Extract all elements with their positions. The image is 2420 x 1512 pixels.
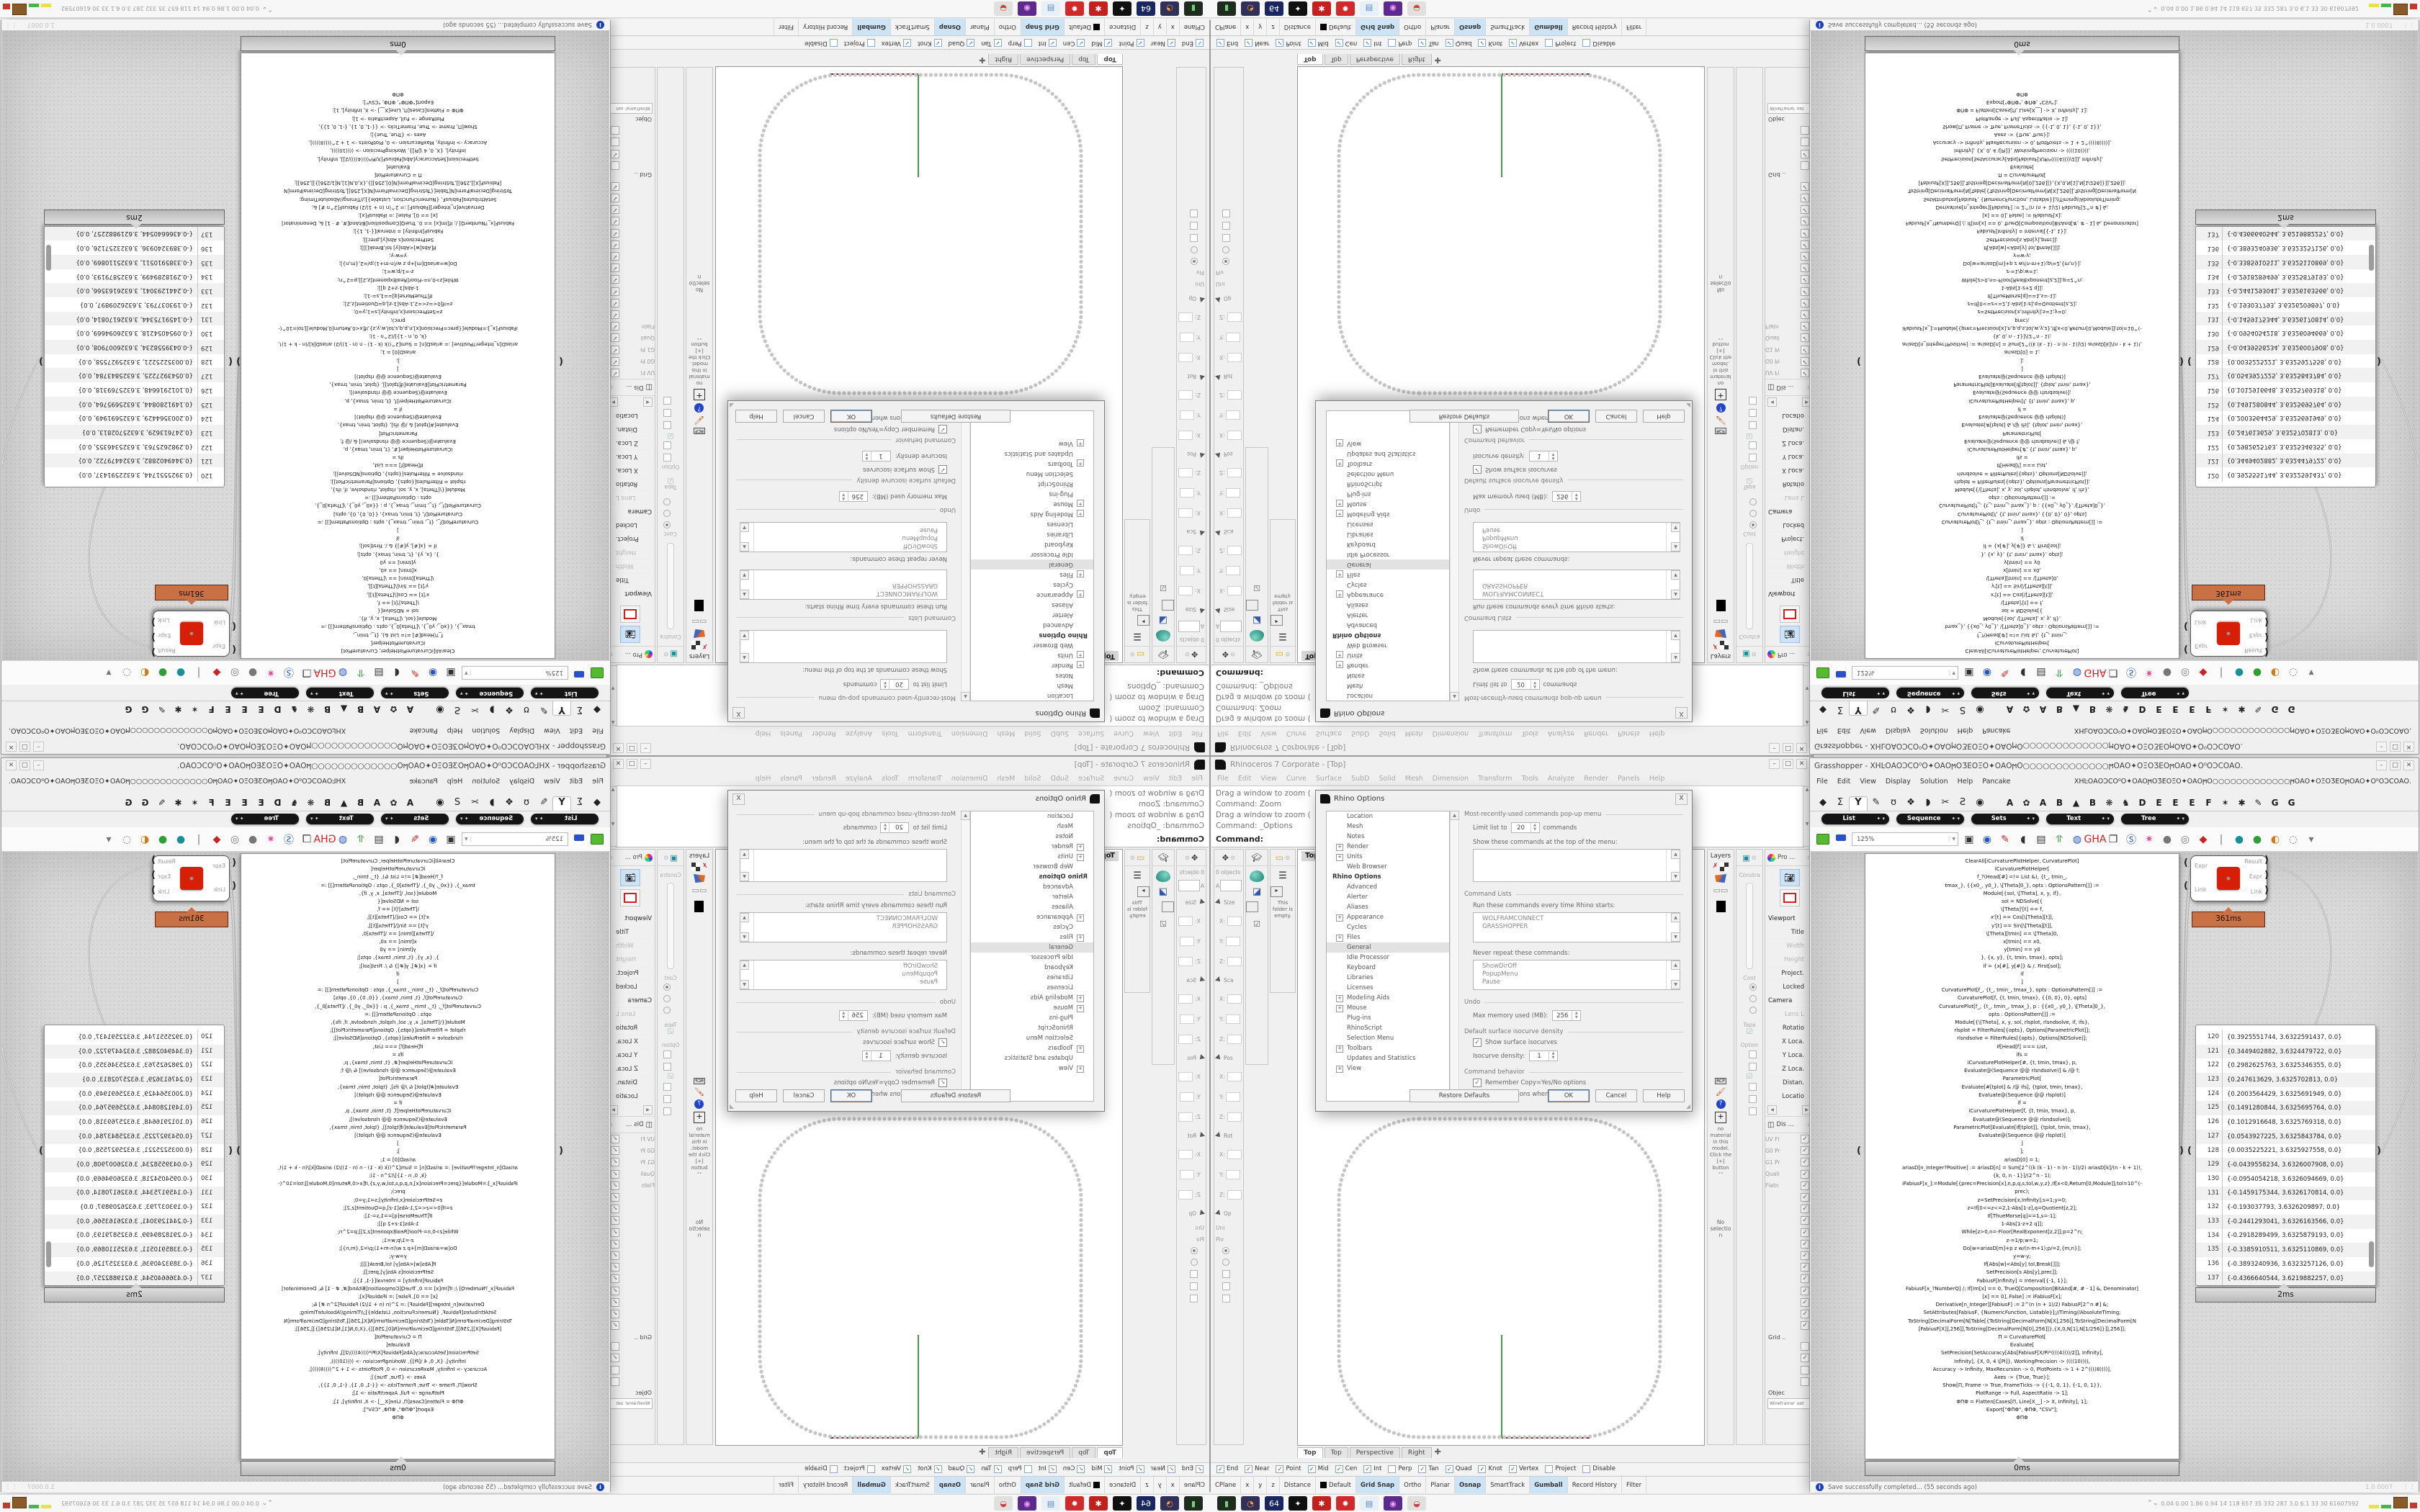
options-tree-item[interactable]: +Toolbars — [971, 459, 1093, 469]
property-row[interactable]: Width — [606, 559, 655, 572]
property-row[interactable]: Locked — [606, 981, 655, 994]
rhino-menu-item[interactable]: File — [1217, 775, 1229, 783]
gh-category-tab[interactable]: ◆ — [588, 797, 606, 811]
check-on-icon[interactable]: ☑ — [658, 431, 684, 439]
options-tree-item[interactable]: +Render — [1327, 842, 1449, 852]
gh-toolbar-icon[interactable]: ▤ — [372, 666, 386, 680]
gh-plugin-tab[interactable]: ✿ — [385, 798, 402, 811]
boxedit-panel-header[interactable]: ✥⚙ — [1177, 850, 1206, 866]
gh-subcategory-pill[interactable]: Sets✦ ▾ — [1971, 688, 2039, 699]
rcp-icon[interactable]: RCP — [1715, 1078, 1726, 1084]
gh-menu-item[interactable]: File — [1816, 778, 1828, 786]
rhino-menu-item[interactable]: Edit — [1238, 729, 1251, 737]
cancel-button[interactable]: Cancel — [1595, 410, 1637, 423]
gh-plugin-tab[interactable]: ✱ — [170, 701, 187, 714]
osnap-item[interactable]: ✓ Quad — [1446, 40, 1472, 48]
checkbox[interactable]: ✓ — [611, 1228, 619, 1237]
gh-plugin-tab[interactable]: ❋ — [302, 701, 319, 714]
display-check-row[interactable]: Flatn ✓ — [606, 320, 655, 332]
boxedit-row[interactable]: Size — [1214, 601, 1243, 618]
osnap-item[interactable]: ✓ Mid — [1308, 40, 1329, 48]
osnap-item[interactable]: ✓ Int — [1039, 40, 1057, 48]
gh-toolbar-icon[interactable]: ⥣ — [2052, 832, 2066, 847]
options-tree-item[interactable]: +Units — [1327, 650, 1449, 660]
gh-plugin-tab[interactable]: ✶ — [2217, 798, 2233, 811]
gh-plugin-tab[interactable]: B — [352, 701, 369, 714]
boxedit-row[interactable] — [1214, 256, 1243, 267]
statusbar-cell[interactable]: Distance — [1104, 19, 1140, 35]
rhino-menu-item[interactable]: Dimension — [951, 775, 988, 783]
tree-expand-icon[interactable]: + — [1077, 1066, 1084, 1073]
help-button[interactable]: Help — [1643, 1089, 1685, 1102]
osnap-item[interactable]: ✓ Point — [1276, 1465, 1301, 1473]
checkbox[interactable] — [1749, 1063, 1757, 1071]
boxedit-row[interactable]: Z: — [1214, 1029, 1243, 1049]
boxedit-row[interactable] — [1177, 1292, 1206, 1305]
options-tree-item[interactable]: +Appearance — [971, 912, 1093, 922]
osnap-checkbox[interactable]: ✓ — [1104, 40, 1112, 48]
boxedit-row[interactable]: Y: — [1214, 1009, 1243, 1029]
maximize-button[interactable]: □ — [1783, 743, 1793, 753]
gh-toolbar-icon[interactable]: ● — [174, 666, 188, 680]
rhino-menu-item[interactable]: Analyze — [1548, 775, 1574, 783]
checkbox[interactable]: ✓ — [611, 1170, 619, 1179]
boxedit-row[interactable]: Rot — [1214, 368, 1243, 385]
checkbox[interactable]: ✓ — [611, 1310, 619, 1318]
gh-plugin-tab[interactable]: A — [369, 798, 385, 811]
checkbox[interactable]: ✓ — [611, 333, 619, 342]
options-tree-item[interactable]: +Location — [971, 811, 1093, 822]
boxedit-row[interactable]: X: — [1214, 989, 1243, 1009]
viewport-tab[interactable]: Right — [988, 1447, 1018, 1458]
rhino-menu-item[interactable]: Analyze — [1548, 729, 1574, 737]
gh-category-tab[interactable]: ✎ — [1868, 797, 1885, 811]
gh-plugin-tab[interactable]: ▲ — [2068, 798, 2084, 811]
tree-expand-icon[interactable]: + — [1077, 1005, 1084, 1012]
close-button[interactable]: ✕ — [613, 743, 624, 753]
checkbox[interactable] — [1801, 1377, 1809, 1386]
boxedit-row[interactable]: Uni — [1214, 1222, 1243, 1233]
gh-toolbar-icon[interactable]: ● — [246, 666, 260, 680]
taskbar-app-icon[interactable]: ◒ — [994, 1496, 1013, 1511]
gh-plugin-tab[interactable]: G — [137, 701, 153, 714]
checkbox[interactable] — [1749, 421, 1757, 429]
gh-category-tab[interactable]: Σ — [1832, 797, 1849, 811]
osnap-item[interactable]: ✓ Tan — [1418, 40, 1438, 48]
options-tree-item[interactable]: +Mesh — [1327, 822, 1449, 832]
gh-subcategory-pill[interactable]: Tree✦ ▾ — [231, 814, 299, 824]
osnap-item[interactable]: ✓ Int — [1363, 1465, 1381, 1473]
gh-menu-item[interactable]: Pancake — [410, 778, 438, 786]
gh-plugin-tab[interactable]: D — [2134, 701, 2151, 714]
checkbox[interactable]: ✓ — [1801, 217, 1809, 225]
boxedit-field[interactable] — [1190, 222, 1198, 230]
tree-expand-icon[interactable]: + — [1077, 500, 1084, 507]
tree-scrollbar[interactable]: ▲ ▼ — [961, 410, 970, 701]
gh-plugin-tab[interactable]: D — [269, 701, 286, 714]
resize-grip[interactable]: ⋮⋮ — [2403, 1483, 2416, 1490]
display-check-row[interactable]: ✓ — [1765, 1320, 1814, 1331]
property-row[interactable]: Locked — [606, 518, 655, 531]
isocurve-density-spinner[interactable]: 1▲▼ — [862, 1050, 891, 1061]
gh-plugin-tab[interactable]: ✶ — [187, 701, 203, 714]
osnap-checkbox[interactable]: ✓ — [1049, 1465, 1057, 1473]
delete-layer-icon[interactable]: ✗ — [702, 863, 708, 871]
display-check-row[interactable]: ✓ — [606, 274, 655, 285]
osnap-checkbox[interactable] — [830, 1465, 838, 1473]
boxedit-field[interactable] — [1227, 509, 1242, 518]
options-tree-item[interactable]: +Rhino Options — [1327, 630, 1449, 640]
max-memory-spinner[interactable]: 256▲▼ — [839, 491, 868, 502]
boxedit-field[interactable] — [1227, 1190, 1242, 1200]
restore-defaults-button[interactable]: Restore Defaults — [901, 410, 1010, 423]
show-isocurves-check[interactable]: ✓ Show surface isocurves — [1473, 465, 1683, 474]
taskbar-app-icon[interactable]: ✹ — [1065, 1496, 1084, 1511]
gh-plugin-tab[interactable]: B — [2051, 701, 2068, 714]
display-check-row[interactable]: G0 Pr ✓ — [606, 356, 655, 367]
gh-plugin-tab[interactable]: E — [2151, 798, 2167, 811]
gh-toolbar-icon[interactable]: ◖ — [2016, 666, 2030, 680]
checkbox[interactable]: ✓ — [1801, 299, 1809, 307]
options-tree-item[interactable]: +Rhino Options — [971, 872, 1093, 882]
gh-menu-item[interactable]: Edit — [570, 727, 583, 735]
grid-check-row[interactable] — [606, 1364, 655, 1376]
options-tree-item[interactable]: +Mouse — [1327, 1003, 1449, 1013]
check-on-icon[interactable]: ☑ — [1736, 1073, 1762, 1081]
panel-input-grip[interactable]: ( — [2187, 1146, 2192, 1156]
dialog-close-button[interactable]: X — [1675, 707, 1688, 719]
display-check-row[interactable]: Quali ✓ — [1765, 1169, 1814, 1180]
gh-category-tab[interactable]: ❖ — [501, 797, 518, 811]
gh-subcategory-pill[interactable]: List✦ ▾ — [1821, 814, 1889, 824]
boxedit-field[interactable] — [1227, 994, 1242, 1004]
checkbox[interactable]: ✓ — [611, 150, 619, 158]
gh-menu-item[interactable]: Edit — [1837, 778, 1850, 786]
display-check-row[interactable]: ✓ — [606, 181, 655, 192]
tree-expand-icon[interactable]: + — [1336, 459, 1343, 467]
property-row[interactable]: Width — [1765, 559, 1814, 572]
gh-subcategory-pill[interactable]: Sets✦ ▾ — [1971, 814, 2039, 824]
gh-toolbar-icon[interactable]: ✎ — [1998, 832, 2012, 847]
rhino-menu-item[interactable]: Edit — [1238, 775, 1251, 783]
startup-commands-listbox[interactable]: WOLFRAMCONNECTGRASSHOPPER ▲▼ — [740, 912, 947, 942]
boxedit-field[interactable] — [1227, 917, 1242, 926]
checkbox[interactable]: ✓ — [1801, 357, 1809, 366]
statusbar-cell[interactable]: Distance — [1280, 1477, 1316, 1493]
panel-input-grip[interactable]: ( — [2187, 356, 2192, 366]
boxedit-row[interactable]: A — [1177, 618, 1206, 634]
panel-output-grip[interactable]: ) — [2179, 356, 2184, 366]
boxedit-field[interactable] — [1226, 1014, 1240, 1024]
show-isocurves-check[interactable]: ✓ Show surface isocurves — [737, 465, 947, 474]
help-button[interactable]: Help — [1643, 410, 1685, 423]
rhino-menu-item[interactable]: View — [1260, 729, 1277, 737]
gh-subcategory-pill[interactable]: Text✦ ▾ — [2046, 688, 2114, 699]
boxedit-field[interactable] — [1178, 354, 1193, 363]
osnap-checkbox[interactable]: ✓ — [1245, 1465, 1252, 1473]
gh-subcategory-pill[interactable]: List✦ ▾ — [531, 688, 599, 699]
osnap-checkbox[interactable]: ✓ — [1216, 40, 1224, 48]
boxedit-row[interactable] — [1177, 232, 1206, 244]
gh-titlebar[interactable]: Grasshopper - XHĿΟΑΟϽϹΟ⁰Ο✦ΟΑΟϻΟƷΕΟΞΟ✦ΟΑΟ… — [1, 758, 610, 773]
boxedit-row[interactable]: Z: — [1177, 1107, 1206, 1127]
tree-expand-icon[interactable]: + — [1077, 1045, 1084, 1053]
boxedit-field[interactable] — [1178, 391, 1193, 400]
radio-on-icon[interactable] — [1749, 521, 1757, 528]
options-tree-item[interactable]: +Render — [971, 842, 1093, 852]
dialog-close-button[interactable]: X — [1675, 793, 1688, 805]
checkbox[interactable]: ✓ — [1801, 333, 1809, 342]
startup-command-item[interactable]: WOLFRAMCONNECT — [1478, 915, 1680, 923]
boxedit-row[interactable]: Uni — [1177, 279, 1206, 290]
statusbar-cell[interactable]: y — [1254, 19, 1267, 35]
property-row[interactable]: Lens L — [606, 490, 655, 504]
gh-plugin-tab[interactable]: E — [2184, 701, 2200, 714]
never-repeat-item[interactable]: ShowDirOff — [740, 541, 942, 549]
taskbar-app-icon[interactable]: 64 — [1265, 1496, 1283, 1511]
checkbox[interactable]: ✓ — [611, 217, 619, 225]
checkbox[interactable]: ✓ — [938, 465, 947, 474]
display-mode-input[interactable]: Wireframe' set — [1767, 103, 1811, 114]
options-tree-item[interactable]: +Libraries — [1327, 529, 1449, 539]
property-row[interactable]: Y Loca. — [1765, 1049, 1814, 1063]
osnap-checkbox[interactable]: ✓ — [1446, 40, 1453, 48]
options-tree-item[interactable]: +Location — [1327, 811, 1449, 822]
osnap-item[interactable]: ✓ Point — [1119, 1465, 1144, 1473]
boxedit-field[interactable] — [1227, 354, 1242, 363]
options-tree-item[interactable]: +Mesh — [971, 680, 1093, 690]
boxedit-row[interactable]: Y: — [1177, 1086, 1206, 1107]
gh-toolbar-icon[interactable]: Ⓢ — [282, 832, 296, 847]
restore-defaults-button[interactable]: Restore Defaults — [1410, 410, 1519, 423]
display-check-row[interactable]: ✓ — [606, 1192, 655, 1203]
statusbar-cell[interactable]: Filter — [774, 1477, 798, 1493]
checkbox[interactable]: ✓ — [1473, 425, 1482, 433]
boxedit-row[interactable]: Z: — [1177, 385, 1206, 405]
options-tree-item[interactable]: +Advanced — [1327, 882, 1449, 892]
vertical-slider[interactable] — [667, 883, 674, 969]
taskbar-app-icon[interactable]: ◔ — [1241, 1496, 1260, 1511]
property-row[interactable]: Distan. — [606, 1076, 655, 1090]
checkbox[interactable] — [1749, 1107, 1757, 1115]
gh-plugin-tab[interactable]: ✎ — [153, 798, 170, 811]
gh-plugin-tab[interactable]: G — [2267, 798, 2283, 811]
checkbox[interactable]: ✓ — [611, 205, 619, 214]
gh-toolbar-icon[interactable]: ▤ — [2034, 666, 2048, 680]
options-tree-item[interactable]: +Location — [971, 690, 1093, 701]
new-layer-icon[interactable]: ▭▭ — [692, 886, 707, 895]
boxedit-row[interactable] — [1177, 1245, 1206, 1256]
osnap-checkbox[interactable]: ✓ — [967, 40, 974, 48]
boxedit-row[interactable] — [1177, 1268, 1206, 1280]
gh-subcategory-pill[interactable]: Text✦ ▾ — [306, 688, 374, 699]
checkbox[interactable] — [663, 397, 671, 405]
checkbox[interactable]: ✓ — [1801, 1146, 1809, 1155]
boxedit-field[interactable] — [1227, 469, 1242, 478]
boxedit-field[interactable] — [1180, 411, 1194, 420]
osnap-item[interactable]: ✓ End — [1182, 40, 1204, 48]
minimize-button[interactable]: – — [2376, 760, 2387, 770]
statusbar-cell[interactable]: Gumball — [852, 1477, 890, 1493]
options-tree-item[interactable]: +Alerter — [1327, 892, 1449, 902]
checkbox[interactable]: ✓ — [1801, 150, 1809, 158]
startup-command-item[interactable]: GRASSHOPPER — [740, 923, 942, 931]
resize-grip[interactable]: ◢ — [730, 402, 734, 409]
display-check-row[interactable]: G1 Pr ✓ — [606, 1156, 655, 1168]
boxedit-field[interactable] — [1178, 880, 1200, 891]
boxedit-row[interactable]: Y: — [1177, 405, 1206, 426]
options-tree-item[interactable]: +Notes — [971, 670, 1093, 680]
ok-button[interactable]: OK — [1548, 1089, 1590, 1102]
gh-menu-item[interactable]: Help — [1958, 727, 1973, 735]
vertical-slider[interactable] — [1746, 543, 1753, 629]
boxedit-row[interactable]: Z: — [1177, 307, 1206, 328]
checkbox[interactable]: ✓ — [611, 1182, 619, 1190]
checkbox[interactable]: ✓ — [1801, 1298, 1809, 1307]
boxedit-field[interactable] — [1180, 489, 1194, 498]
boxedit-row[interactable]: Y: — [1214, 328, 1243, 348]
gh-category-tab[interactable]: ʊ — [518, 701, 535, 715]
rhino-menu-item[interactable]: Help — [1649, 729, 1665, 737]
component-output-grip[interactable]: ) — [151, 616, 156, 627]
rhino-menu-item[interactable]: Solid — [1379, 775, 1396, 783]
taskbar-app-icon[interactable]: ▮ — [1184, 1, 1203, 16]
checkbox[interactable]: ✓ — [1801, 1216, 1809, 1225]
boxedit-row[interactable]: X: — [1177, 1144, 1206, 1164]
gh-plugin-tab[interactable]: B — [2084, 798, 2101, 811]
rhino-menu-item[interactable]: Curve — [1113, 775, 1134, 783]
property-row[interactable]: Camera — [1765, 994, 1814, 1008]
boxedit-row[interactable]: Z: — [1214, 1107, 1243, 1127]
gh-menu-item[interactable]: File — [1816, 727, 1828, 735]
boxedit-row[interactable]: 0 objects — [1214, 634, 1243, 646]
never-repeat-item[interactable]: Pause — [740, 526, 942, 534]
options-tree-item[interactable]: +Notes — [1327, 670, 1449, 680]
gh-menu-item[interactable]: Display — [509, 778, 534, 786]
gh-toolbar-icon[interactable]: ❐ — [300, 666, 314, 680]
osnap-item[interactable]: ✓ Tan — [981, 40, 1001, 48]
osnap-checkbox[interactable]: ✓ — [1077, 40, 1085, 48]
display-check-row[interactable]: ✓ — [606, 239, 655, 251]
component-output-grip[interactable]: ) — [2264, 647, 2269, 657]
gh-category-tab[interactable]: Σ — [1832, 701, 1849, 715]
boxedit-row[interactable] — [1214, 1256, 1243, 1268]
display-check-row[interactable]: ✓ — [1765, 228, 1814, 239]
options-tree-item[interactable]: +Idle Processor — [1327, 953, 1449, 963]
render-panel-header[interactable]: 🎓︎ — [1152, 646, 1174, 662]
gh-category-tab[interactable]: ◉ — [1971, 701, 1989, 715]
boxedit-panel-header[interactable]: ✥⚙ — [1177, 646, 1206, 662]
gh-plugin-tab[interactable]: ♞ — [2117, 701, 2134, 714]
gh-plugin-tab[interactable]: E — [253, 701, 269, 714]
options-tree-item[interactable]: +RhinoScript — [1327, 1023, 1449, 1033]
rhino-menu-item[interactable]: Transform — [1478, 775, 1512, 783]
gh-toolbar-icon[interactable]: ● — [2250, 666, 2264, 680]
check-on-icon[interactable]: ☑ — [1736, 476, 1762, 484]
gh-category-tab[interactable]: Σ — [571, 797, 588, 811]
boxedit-field[interactable] — [1178, 1112, 1193, 1122]
swatch-box[interactable] — [1162, 600, 1174, 611]
options-tree-item[interactable]: +Keyboard — [971, 963, 1093, 973]
osnap-item[interactable]: ✓ Vertex — [882, 40, 911, 48]
code-panel[interactable]: ClearAll[iCurvaturePlotHelper, Curvature… — [241, 853, 555, 1459]
options-tree-item[interactable]: +Web Browser — [971, 640, 1093, 650]
close-button[interactable]: ✕ — [6, 742, 17, 752]
close-button[interactable]: ✕ — [2403, 760, 2414, 770]
gh-menu-item[interactable]: Pancake — [1982, 727, 2010, 735]
taskbar-app-icon[interactable]: ▤ — [1360, 1, 1379, 16]
boxedit-field[interactable] — [1226, 333, 1240, 343]
panel-output-grip[interactable]: ) — [39, 356, 43, 366]
checkbox[interactable]: ✓ — [611, 1240, 619, 1248]
boxedit-field[interactable] — [1222, 1295, 1230, 1302]
options-tree-item[interactable]: +Web Browser — [1327, 640, 1449, 650]
check-on-icon[interactable]: ☑ — [658, 1028, 684, 1036]
panel-input-grip[interactable]: ( — [1857, 356, 1861, 366]
taskbar-app-icon[interactable]: ✦ — [1289, 1, 1307, 16]
checkbox[interactable] — [663, 1107, 671, 1115]
viewport-tab[interactable]: Top — [1297, 1447, 1323, 1458]
gh-subcategory-pill[interactable]: List✦ ▾ — [1821, 688, 1889, 699]
boxedit-row[interactable]: X: — [1177, 581, 1206, 601]
code-panel[interactable]: ClearAll[iCurvaturePlotHelper, Curvature… — [241, 53, 555, 659]
boxedit-row[interactable]: X: — [1177, 426, 1206, 446]
osnap-checkbox[interactable]: ✓ — [994, 1465, 1002, 1473]
tree-expand-icon[interactable]: + — [1077, 570, 1084, 577]
checkbox[interactable]: ✓ — [1801, 1321, 1809, 1330]
options-tree-item[interactable]: +General — [1327, 942, 1449, 953]
osnap-item[interactable]: Disable — [1582, 1465, 1615, 1473]
zoom-level-combo[interactable]: 125%▼ — [462, 666, 568, 680]
boxedit-row[interactable]: Z: — [1214, 385, 1243, 405]
boxedit-row[interactable]: A — [1177, 878, 1206, 894]
gh-plugin-tab[interactable]: ✱ — [170, 798, 187, 811]
gh-plugin-tab[interactable]: ✶ — [187, 798, 203, 811]
swatch-box[interactable] — [1246, 600, 1258, 611]
property-row[interactable]: Width — [606, 940, 655, 953]
display-check-row[interactable]: Flatn ✓ — [1765, 1180, 1814, 1192]
statusbar-cell[interactable]: Planar — [1426, 1477, 1455, 1493]
gh-toolbar-icon[interactable]: ▾ — [102, 832, 116, 847]
rhino-menu-item[interactable]: Panels — [1618, 775, 1640, 783]
tree-expand-icon[interactable]: + — [1336, 661, 1343, 668]
vertical-slider[interactable] — [1746, 883, 1753, 969]
statusbar-cell[interactable]: y — [1254, 1477, 1267, 1493]
gh-category-tab[interactable]: ❖ — [501, 701, 518, 715]
panel-output-grip[interactable]: ) — [39, 1146, 43, 1156]
boxedit-row[interactable]: Sca — [1214, 523, 1243, 541]
viewport-tab[interactable]: Perspective — [1020, 54, 1070, 65]
property-row[interactable]: Title — [606, 572, 655, 586]
startup-command-item[interactable]: WOLFRAMCONNECT — [740, 915, 942, 923]
dialog-close-button[interactable]: X — [732, 707, 745, 719]
gh-menu-item[interactable]: View — [544, 727, 560, 735]
boxedit-row[interactable]: Piv — [1177, 267, 1206, 279]
checkbox[interactable]: ✓ — [611, 1205, 619, 1213]
restore-defaults-button[interactable]: Restore Defaults — [1410, 1089, 1519, 1102]
osnap-checkbox[interactable]: ✓ — [1308, 1465, 1316, 1473]
boxedit-field[interactable] — [1178, 587, 1193, 596]
property-row[interactable]: Viewport — [606, 586, 655, 600]
osnap-checkbox[interactable]: ✓ — [903, 40, 911, 48]
gh-toolbar-icon[interactable]: | — [2214, 832, 2228, 847]
gh-plugin-tab[interactable]: G — [2283, 798, 2300, 811]
hamburger-icon[interactable]: ☰ — [1270, 631, 1295, 642]
behavior-check[interactable]: ✓ Remember Copy=Yes/No options — [1473, 1079, 1683, 1087]
boxedit-field[interactable] — [1226, 1092, 1240, 1102]
gh-menu-item[interactable]: Solution — [472, 778, 500, 786]
behavior-check[interactable]: ✓ Remember Copy=Yes/No options — [737, 1079, 947, 1087]
